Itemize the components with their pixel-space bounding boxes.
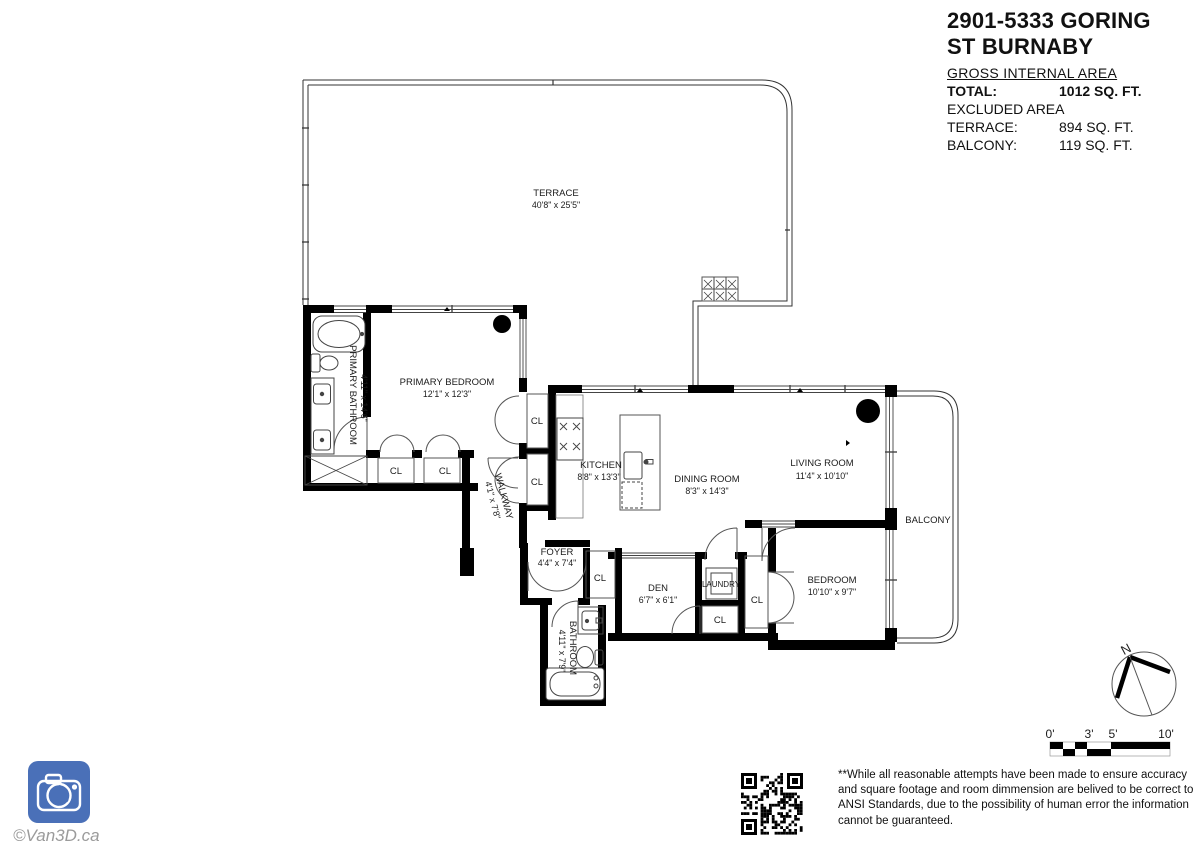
gross-internal-area-label: GROSS INTERNAL AREA bbox=[947, 65, 1192, 81]
balcony-area-value: 119 SQ. FT. bbox=[1059, 137, 1133, 153]
kitchen-island-icon bbox=[620, 415, 660, 510]
watermark-text: ©Van3D.ca bbox=[13, 826, 100, 846]
stove-icon bbox=[557, 418, 583, 460]
qr-code bbox=[739, 771, 805, 837]
svg-text:BATHROOM: BATHROOM bbox=[567, 621, 578, 675]
svg-text:DEN: DEN bbox=[648, 583, 668, 594]
room-label-primary-bedroom: PRIMARY BEDROOM 12'1" x 12'3" bbox=[400, 377, 495, 399]
svg-text:11'4" x 10'10": 11'4" x 10'10" bbox=[796, 471, 849, 481]
svg-text:8'8" x 13'3": 8'8" x 13'3" bbox=[577, 472, 620, 482]
terrace-area-value: 894 SQ. FT. bbox=[1059, 119, 1134, 135]
svg-text:8'3" x 14'3": 8'3" x 14'3" bbox=[685, 486, 728, 496]
room-label-terrace: TERRACE 40'8" x 25'5" bbox=[532, 188, 580, 210]
room-label-den: DEN 6'7" x 6'1" bbox=[639, 583, 677, 605]
column-dot-living bbox=[856, 399, 880, 423]
svg-text:LIVING ROOM: LIVING ROOM bbox=[790, 458, 853, 469]
north-arrow: N bbox=[1112, 640, 1176, 716]
closet-label: CL bbox=[390, 466, 402, 477]
total-value: 1012 SQ. FT. bbox=[1059, 83, 1141, 99]
svg-text:40'8" x 25'5": 40'8" x 25'5" bbox=[532, 200, 580, 210]
terrace-railing bbox=[302, 80, 792, 388]
terrace-area-label: TERRACE: bbox=[947, 119, 1059, 135]
svg-text:PRIMARY BEDROOM: PRIMARY BEDROOM bbox=[400, 377, 495, 388]
walls bbox=[303, 305, 897, 706]
svg-text:LAUNDRY: LAUNDRY bbox=[702, 580, 741, 589]
total-row: TOTAL: 1012 SQ. FT. bbox=[947, 83, 1192, 99]
balcony-area-row: BALCONY: 119 SQ. FT. bbox=[947, 137, 1192, 153]
svg-text:DINING ROOM: DINING ROOM bbox=[674, 474, 740, 485]
room-label-walkway: WALKWAY 4'1" x 7'8" bbox=[483, 472, 515, 521]
column-dot-bedroom bbox=[493, 315, 511, 333]
closet-label: CL bbox=[531, 416, 543, 427]
svg-text:BEDROOM: BEDROOM bbox=[807, 575, 856, 586]
van3d-logo bbox=[27, 760, 91, 824]
scale-tick-5: 5' bbox=[1109, 727, 1118, 741]
room-label-kitchen: KITCHEN 8'8" x 13'3" bbox=[577, 460, 622, 482]
shower-icon bbox=[305, 456, 367, 485]
room-label-laundry: LAUNDRY bbox=[702, 580, 741, 589]
svg-text:KITCHEN: KITCHEN bbox=[580, 460, 622, 471]
svg-text:10'10" x 9'7": 10'10" x 9'7" bbox=[808, 587, 856, 597]
closet-label: CL bbox=[751, 595, 763, 606]
disclaimer-text: **While all reasonable attempts have bee… bbox=[838, 768, 1194, 829]
scale-bar: 0' 3' 5' 10' bbox=[1046, 727, 1174, 756]
svg-text:4'11" x 7'9": 4'11" x 7'9" bbox=[557, 630, 567, 673]
floor-plan-page: TERRACE 40'8" x 25'5" PRIMARY BEDROOM 12… bbox=[0, 0, 1200, 850]
title-block: 2901-5333 GORING ST BURNABY GROSS INTERN… bbox=[947, 8, 1192, 153]
room-label-dining-room: DINING ROOM 8'3" x 14'3" bbox=[674, 474, 740, 496]
scale-tick-0: 0' bbox=[1046, 727, 1055, 741]
closet-label: CL bbox=[714, 615, 726, 626]
svg-text:4'4" x 7'4": 4'4" x 7'4" bbox=[538, 558, 576, 568]
vanity-icon bbox=[311, 378, 334, 454]
terrace-table-icon bbox=[702, 277, 738, 301]
svg-text:12'1" x 12'3": 12'1" x 12'3" bbox=[423, 389, 471, 399]
svg-text:TERRACE: TERRACE bbox=[533, 188, 578, 199]
svg-text:4'11" x 14'6": 4'11" x 14'6" bbox=[359, 374, 369, 422]
room-label-foyer: FOYER 4'4" x 7'4" bbox=[538, 547, 576, 568]
svg-text:PRIMARY BATHROOM: PRIMARY BATHROOM bbox=[347, 345, 358, 445]
room-label-living-room: LIVING ROOM 11'4" x 10'10" bbox=[790, 458, 853, 481]
scale-tick-3: 3' bbox=[1085, 727, 1094, 741]
total-label: TOTAL: bbox=[947, 83, 1059, 99]
room-label-balcony: BALCONY bbox=[905, 515, 951, 526]
closet-label: CL bbox=[531, 477, 543, 488]
room-label-bedroom: BEDROOM 10'10" x 9'7" bbox=[807, 575, 856, 597]
room-label-bathroom: BATHROOM 4'11" x 7'9" bbox=[557, 621, 578, 675]
svg-text:FOYER: FOYER bbox=[541, 547, 574, 558]
svg-text:BALCONY: BALCONY bbox=[905, 515, 951, 526]
svg-text:6'7" x 6'1": 6'7" x 6'1" bbox=[639, 595, 677, 605]
excluded-area-label: EXCLUDED AREA bbox=[947, 101, 1064, 117]
scale-tick-10: 10' bbox=[1158, 727, 1174, 741]
page-title-line1: 2901-5333 GORING bbox=[947, 8, 1192, 34]
dimension-ticks bbox=[306, 307, 850, 527]
closet-label: CL bbox=[594, 573, 606, 584]
closet-label: CL bbox=[439, 466, 451, 477]
excluded-area-row: EXCLUDED AREA bbox=[947, 101, 1192, 117]
toilet-icon bbox=[311, 354, 338, 372]
balcony-area-label: BALCONY: bbox=[947, 137, 1059, 153]
terrace-area-row: TERRACE: 894 SQ. FT. bbox=[947, 119, 1192, 135]
page-title-line2: ST BURNABY bbox=[947, 34, 1192, 60]
